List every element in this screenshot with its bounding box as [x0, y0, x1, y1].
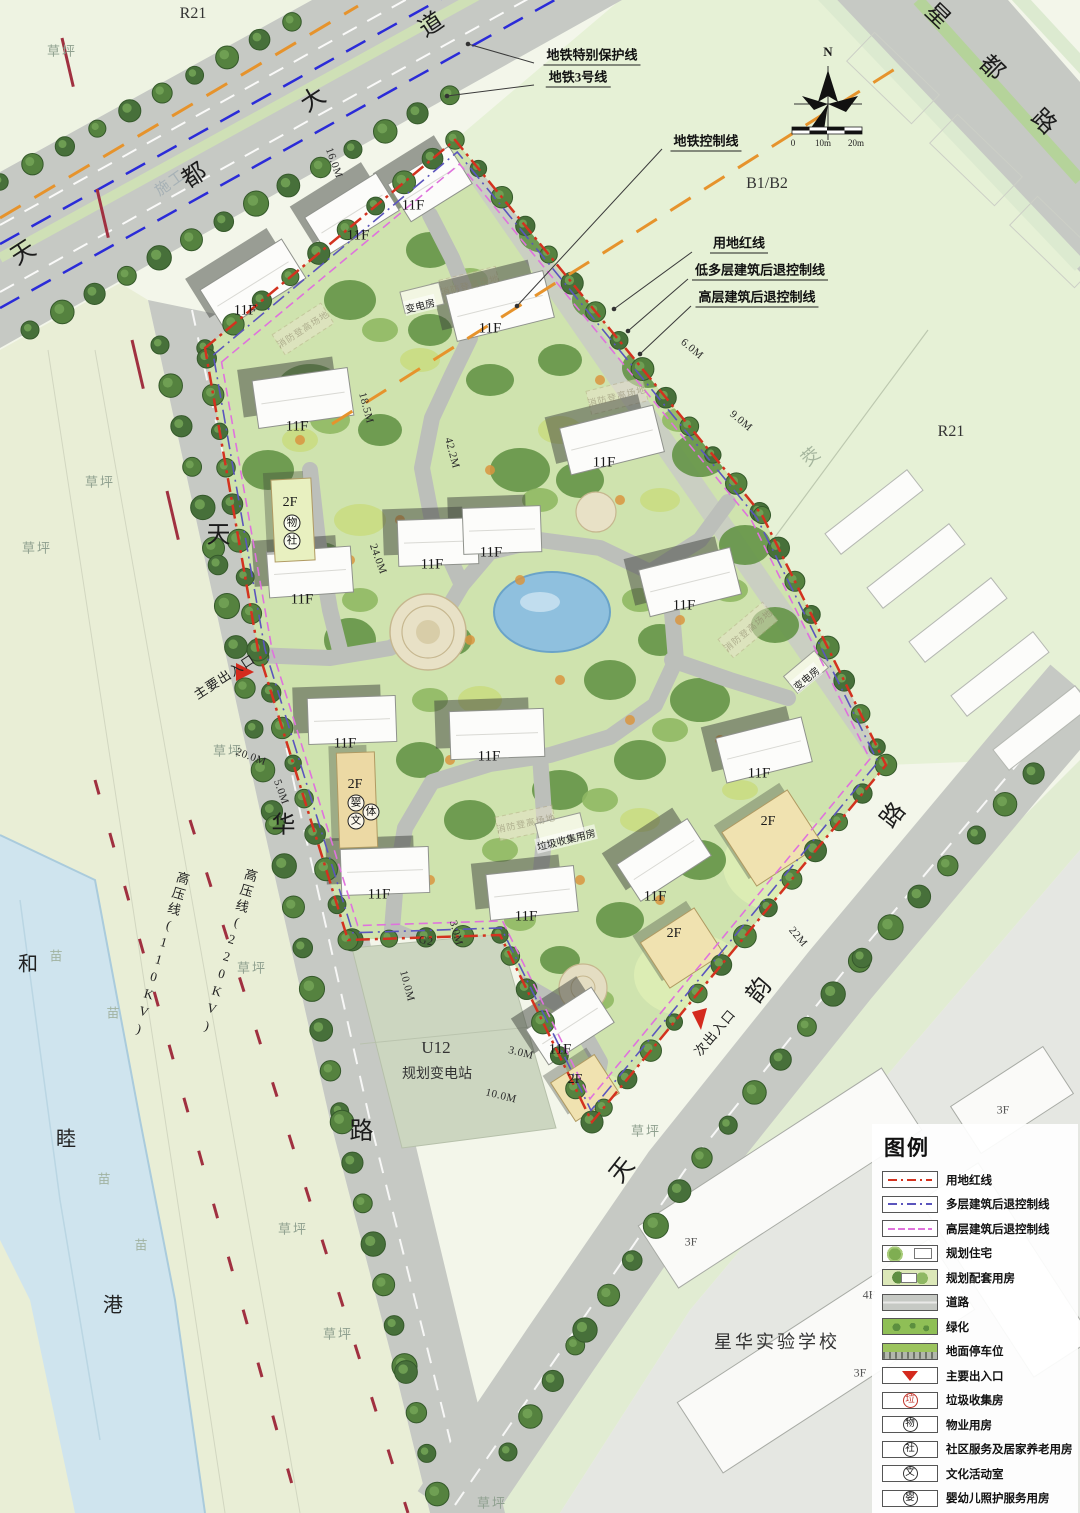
road-char-xingdu-1: 都	[973, 45, 1015, 88]
legend-item-main-entrance: 主要出入口	[882, 1367, 1078, 1384]
river-char-0: 和	[18, 948, 38, 977]
north-label: N	[823, 44, 832, 60]
lawn-label: 草坪	[22, 538, 52, 557]
entrance-triangle-icon	[902, 1371, 918, 1381]
legend-item-greenery: 绿化	[882, 1318, 1078, 1335]
dim-label: 10.0M	[397, 969, 417, 1003]
fire-pad-label: 消防登高场地	[721, 606, 775, 655]
school-floor-label: 3F	[685, 1235, 698, 1250]
building-label-11f: 11F	[515, 909, 538, 926]
building-label-11f: 11F	[644, 889, 667, 906]
amenity-culture-icon: 文	[348, 813, 365, 830]
garbage-circle-icon: 垃	[903, 1393, 918, 1408]
callout-highrise-setback: 高层建筑后退控制线	[695, 287, 818, 308]
culture-swatch: 文	[882, 1465, 938, 1482]
community-swatch: 社	[882, 1441, 938, 1458]
building-label-11f: 11F	[479, 321, 502, 338]
building-label-2f: 2F	[761, 814, 776, 830]
scale-ten: 10m	[815, 138, 831, 148]
nursery-label: 苗	[106, 1003, 121, 1022]
road-char-tiandu-0: 天	[2, 229, 42, 272]
legend-label: 垃圾收集房	[946, 1392, 1004, 1408]
dim-label: 6.0M	[678, 336, 705, 362]
dim-label: 9.0M	[727, 408, 754, 434]
school-floor-label: 3F	[854, 1366, 867, 1381]
road-char-tianhua-2: 路	[350, 1111, 375, 1146]
building-label-2f: 2F	[568, 1072, 583, 1088]
dim-label: 18.5M	[356, 391, 376, 425]
amenity-sports-icon: 体	[363, 804, 380, 821]
hv-110kv-label: 高压线(110KV)	[127, 869, 193, 1041]
zone-r21-top: R21	[180, 5, 207, 23]
zone-r21-right: R21	[938, 423, 965, 441]
legend-item-property: 物 物业用房	[882, 1416, 1078, 1433]
lawn-label: 草坪	[237, 958, 267, 977]
hv-220kv-label: 高压线(220KV)	[195, 866, 261, 1038]
building-label-11f: 11F	[673, 598, 696, 615]
support-swatch	[882, 1269, 938, 1286]
legend-item-residential: 规划住宅	[882, 1245, 1078, 1262]
legend-item-infant: 婴 婴幼儿照护服务用房	[882, 1490, 1078, 1507]
secondary-entrance-label: 次出入口	[689, 1004, 740, 1059]
fire-pad-label: 消防登高场地	[274, 307, 331, 351]
dim-label: 3.0M	[447, 919, 465, 947]
school-floor-label: 3F	[997, 1103, 1010, 1118]
greenery-swatch	[882, 1318, 938, 1335]
lawn-label: 草坪	[47, 41, 77, 60]
culture-circle-icon: 文	[903, 1466, 918, 1481]
amenity-community-icon: 社	[284, 533, 301, 550]
legend-label: 绿化	[946, 1319, 969, 1335]
road-char-tianhua-1: 华	[272, 805, 297, 840]
building-label-11f: 11F	[593, 455, 616, 472]
main-entrance-label: 主要出入口	[189, 649, 258, 703]
legend-label: 道路	[946, 1294, 969, 1310]
road-char-tianyun-1: 韵	[736, 967, 779, 1008]
garbage-house-label: 垃圾收集用房	[534, 824, 598, 854]
building-label-11f: 11F	[334, 736, 357, 753]
substation-label: 变电房	[789, 662, 823, 694]
dim-label: 22M	[786, 925, 810, 950]
legend-label: 规划住宅	[946, 1245, 992, 1261]
building-label-11f: 11F	[421, 557, 444, 574]
scale-zero: 0	[791, 138, 796, 148]
legend-item-parking: 地面停车位	[882, 1343, 1078, 1360]
site-plan-stage: 天 都 大 道 星 都 路 天 华 路 天 韵 路 和 睦 港 R21 R21 …	[0, 0, 1080, 1513]
building-label-11f: 11F	[286, 419, 309, 436]
building-label-11f: 11F	[480, 545, 503, 562]
property-swatch: 物	[882, 1416, 938, 1433]
zone-b1b2: B1/B2	[746, 175, 788, 193]
community-circle-icon: 社	[903, 1442, 918, 1457]
substation-label: 变电房	[403, 294, 438, 316]
legend-label: 多层建筑后退控制线	[946, 1196, 1050, 1212]
dim-label: 3.0M	[507, 1044, 535, 1062]
legend-label: 高层建筑后退控制线	[946, 1221, 1050, 1237]
legend-label: 婴幼儿照护服务用房	[946, 1490, 1050, 1506]
legend-item-garbage: 垃 垃圾收集房	[882, 1392, 1078, 1409]
building-label-2f: 2F	[667, 926, 682, 942]
residential-swatch	[882, 1245, 938, 1262]
fire-pad-label: 消防登高场地	[495, 810, 556, 835]
building-label-11f: 11F	[478, 749, 501, 766]
zone-u12-name: 规划变电站	[402, 1063, 472, 1083]
dim-label: 10.0M	[484, 1086, 517, 1105]
building-label-11f: 11F	[549, 1042, 572, 1059]
dim-label: 24.0M	[367, 542, 389, 576]
river-char-2: 港	[103, 1289, 123, 1318]
legend-label: 主要出入口	[946, 1368, 1004, 1384]
lawn-label: 草坪	[477, 1493, 507, 1512]
building-label-2f: 2F	[348, 777, 363, 793]
zone-jiao: 茭	[795, 440, 826, 471]
dim-label: 42.2M	[442, 436, 462, 470]
multi-setback-swatch	[882, 1196, 938, 1213]
lawn-label: 草坪	[631, 1121, 661, 1140]
building-label-2f: 2F	[283, 495, 298, 511]
building-label-11f: 11F	[234, 303, 257, 320]
legend-item-highrise-setback: 高层建筑后退控制线	[882, 1220, 1078, 1237]
red-line-swatch	[882, 1171, 938, 1188]
legend-label: 社区服务及居家养老用房	[946, 1441, 1073, 1457]
zone-u12-code: U12	[421, 1038, 450, 1058]
building-label-11f: 11F	[347, 228, 370, 245]
dim-label: 20.0M	[234, 746, 268, 768]
infant-circle-icon: 婴	[903, 1491, 918, 1506]
road-char-tiandu-3: 道	[410, 1, 450, 44]
dim-label: 5.0M	[271, 778, 291, 806]
legend-label: 地面停车位	[946, 1343, 1004, 1359]
legend-item-culture: 文 文化活动室	[882, 1465, 1078, 1482]
legend-panel: 图例 用地红线 多层建筑后退控制线 高层建筑后退控制线 规划住宅 规划配套用房 …	[872, 1124, 1078, 1513]
building-label-11f: 11F	[402, 198, 425, 215]
road-char-xingdu-2: 路	[1025, 99, 1067, 142]
road-char-tianyun-0: 天	[599, 1147, 642, 1188]
callout-metro-control: 地铁控制线	[670, 131, 741, 152]
road-char-tianhua-0: 天	[207, 515, 232, 550]
lawn-label: 草坪	[323, 1324, 353, 1343]
legend-item-road: 道路	[882, 1294, 1078, 1311]
river-char-1: 睦	[56, 1123, 76, 1152]
road-char-xingdu-0: 星	[919, 0, 961, 35]
road-char-tiandu-2: 大	[292, 76, 332, 119]
entrance-swatch	[882, 1367, 938, 1384]
legend-item-multi-setback: 多层建筑后退控制线	[882, 1196, 1078, 1213]
callout-low-multi-setback: 低多层建筑后退控制线	[692, 260, 828, 281]
callout-metro-line3: 地铁3号线	[546, 67, 611, 88]
nursery-label: 苗	[49, 946, 64, 965]
callout-metro-protect: 地铁特别保护线	[543, 45, 640, 66]
legend-label: 规划配套用房	[946, 1270, 1015, 1286]
nursery-label: 苗	[134, 1235, 149, 1254]
legend-label: 文化活动室	[946, 1466, 1004, 1482]
amenity-property-icon: 物	[284, 515, 301, 532]
nursery-label: 苗	[97, 1169, 112, 1188]
fire-pad-label: 消防登高场地	[439, 271, 500, 298]
fire-pad-label: 消防登高场地	[586, 382, 647, 409]
lawn-label: 草坪	[85, 472, 115, 491]
lawn-label: 草坪	[278, 1219, 308, 1238]
garbage-swatch: 垃	[882, 1392, 938, 1409]
zone-school: 星华实验学校	[714, 1328, 840, 1354]
building-label-11f: 11F	[748, 766, 771, 783]
infant-swatch: 婴	[882, 1490, 938, 1507]
legend-item-support: 规划配套用房	[882, 1269, 1078, 1286]
legend-label: 用地红线	[946, 1172, 992, 1188]
scale-twenty: 20m	[848, 138, 864, 148]
legend-item-red-line: 用地红线	[882, 1171, 1078, 1188]
building-label-11f: 11F	[368, 887, 391, 904]
parking-swatch	[882, 1343, 938, 1360]
dim-label: 16.0M	[323, 146, 345, 180]
legend-title: 图例	[884, 1132, 1078, 1162]
legend-label: 物业用房	[946, 1417, 992, 1433]
road-swatch	[882, 1294, 938, 1311]
property-circle-icon: 物	[903, 1417, 918, 1432]
callout-red-line: 用地红线	[710, 233, 768, 254]
building-label-11f: 11F	[291, 592, 314, 609]
dim-label: G2	[418, 934, 435, 949]
highrise-setback-swatch	[882, 1220, 938, 1237]
legend-item-community: 社 社区服务及居家养老用房	[882, 1441, 1078, 1458]
road-char-tianyun-2: 路	[870, 792, 913, 833]
